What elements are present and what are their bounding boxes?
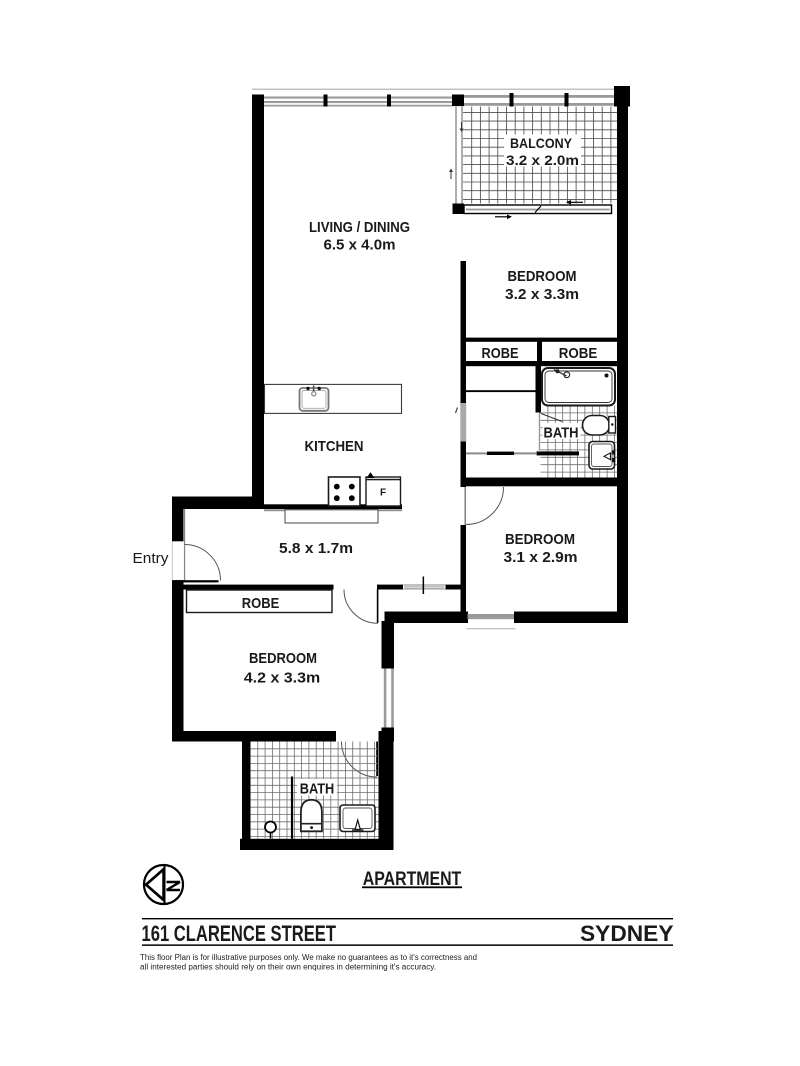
svg-text:Entry: Entry bbox=[133, 550, 170, 567]
svg-text:SYDNEY: SYDNEY bbox=[580, 921, 674, 946]
svg-text:3.2 x 3.3m: 3.2 x 3.3m bbox=[505, 286, 579, 303]
svg-text:LIVING / DINING: LIVING / DINING bbox=[309, 219, 410, 236]
svg-text:ROBE: ROBE bbox=[559, 345, 598, 362]
svg-text:F: F bbox=[380, 488, 386, 499]
svg-text:BEDROOM: BEDROOM bbox=[249, 650, 317, 667]
svg-text:161 CLARENCE STREET: 161 CLARENCE STREET bbox=[142, 921, 337, 946]
svg-text:6.5 x 4.0m: 6.5 x 4.0m bbox=[324, 236, 396, 253]
svg-text:ROBE: ROBE bbox=[482, 345, 519, 362]
svg-text:5.8 x 1.7m: 5.8 x 1.7m bbox=[279, 540, 353, 557]
svg-text:BATH: BATH bbox=[544, 424, 579, 441]
svg-text:BEDROOM: BEDROOM bbox=[505, 531, 575, 548]
svg-text:BATH: BATH bbox=[300, 780, 335, 797]
svg-text:ROBE: ROBE bbox=[242, 595, 280, 612]
svg-text:KITCHEN: KITCHEN bbox=[305, 438, 364, 455]
svg-text:BEDROOM: BEDROOM bbox=[508, 268, 577, 285]
svg-text:4.2 x 3.3m: 4.2 x 3.3m bbox=[244, 669, 321, 686]
svg-text:all interested parties should: all interested parties should rely on th… bbox=[140, 963, 436, 972]
svg-text:This floor Plan is for illustr: This floor Plan is for illustrative purp… bbox=[140, 953, 477, 962]
svg-text:BALCONY: BALCONY bbox=[510, 136, 572, 151]
svg-text:3.2 x 2.0m: 3.2 x 2.0m bbox=[506, 153, 579, 168]
svg-text:3.1 x 2.9m: 3.1 x 2.9m bbox=[504, 549, 578, 566]
